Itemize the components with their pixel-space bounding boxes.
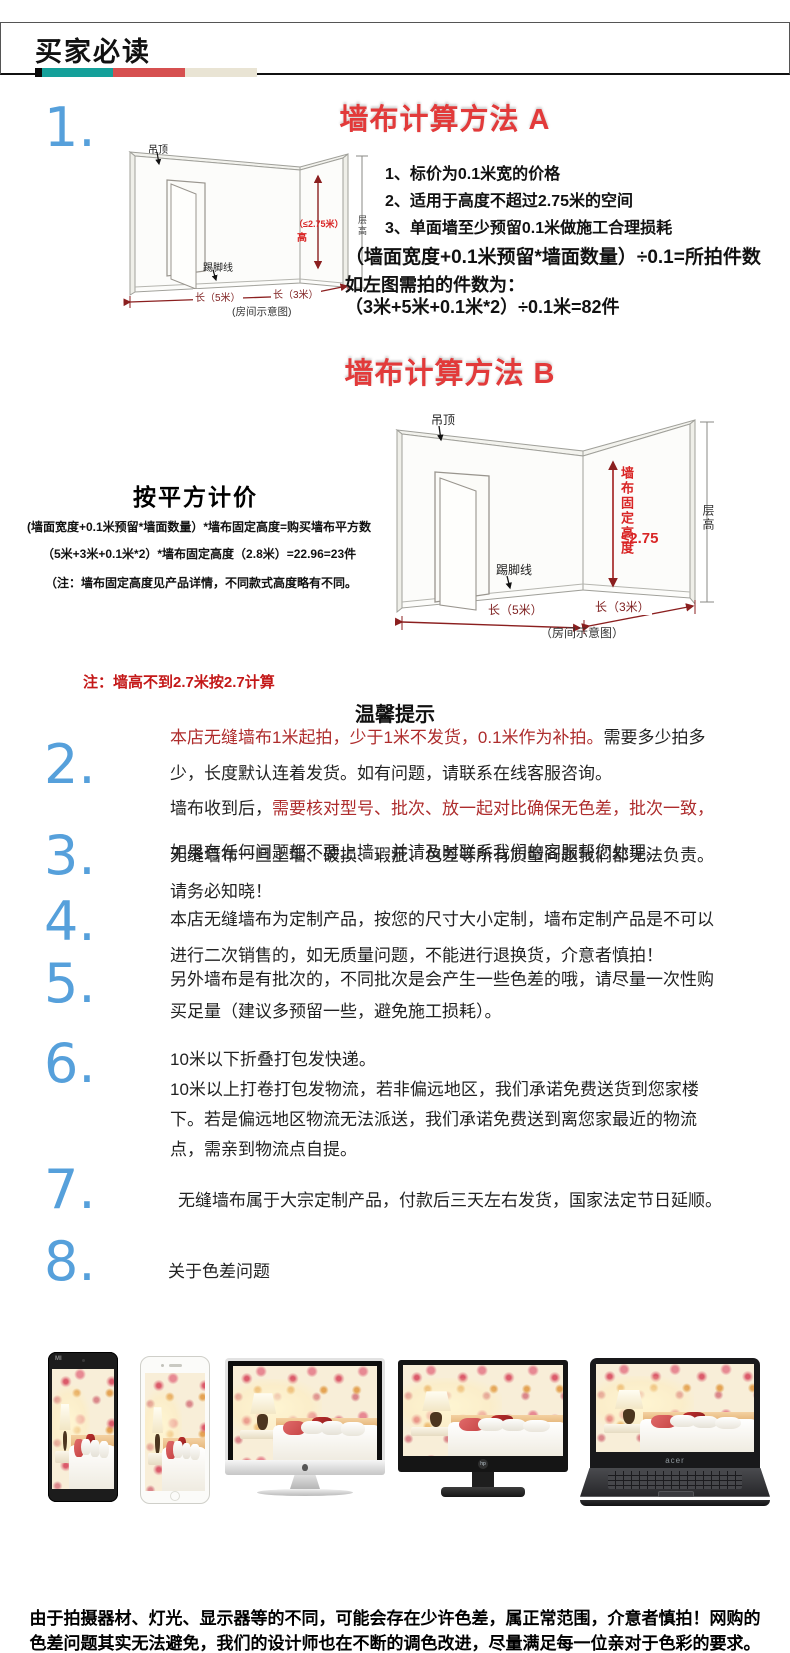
tip-line: 少，长度默认连着发货。如有问题，请联系在线客服咨询。	[170, 759, 612, 784]
ceiling-label-a: 吊顶	[148, 141, 168, 156]
laptop-front-edge	[580, 1500, 770, 1506]
mi-logo: MI	[55, 1356, 62, 1362]
white-pillow	[190, 1444, 200, 1461]
tip-number: 8.	[44, 1232, 96, 1291]
laptop-screen	[596, 1364, 754, 1452]
tablet-screen	[52, 1369, 114, 1489]
acer-logo: acer	[590, 1456, 760, 1465]
bedroom-preview-image	[403, 1365, 563, 1456]
imac-base	[257, 1489, 353, 1496]
home-button-icon	[170, 1491, 180, 1501]
white-pillow	[99, 1441, 110, 1458]
wall-height-note: 注：墙高不到2.7米按2.7计算	[83, 671, 275, 692]
rule-2: 2、适用于高度不超过2.75米的空间	[385, 187, 633, 211]
speaker-icon	[169, 1364, 182, 1367]
floor-height-label-b: 层高	[700, 504, 717, 532]
imac-frame	[225, 1358, 385, 1460]
white-pillow	[478, 1418, 504, 1431]
tip-line: 本店无缝墙布为定制产品，按您的尺寸大小定制，墙布定制产品是不可以	[170, 905, 714, 930]
bedroom-preview-image	[52, 1369, 114, 1489]
tablet-mockup: MI	[48, 1352, 118, 1502]
length-5m-label-b: 长（5米）	[486, 601, 545, 618]
tip-line: 点，需亲到物流点自提。	[170, 1135, 357, 1160]
tip-number: 5.	[44, 954, 96, 1013]
diagram-caption-a: (房间示意图)	[232, 304, 292, 319]
tip-line: 墙布收到后，需要核对型号、批次、放一起对比确保无色差，批次一致，	[170, 794, 714, 819]
method-b-subtitle: 按平方计价	[133, 478, 258, 512]
lamp-shade	[59, 1404, 70, 1430]
tip-number: 4.	[44, 892, 96, 951]
camera-icon	[161, 1364, 164, 1367]
white-pillow	[341, 1422, 365, 1435]
imac-chin	[225, 1460, 385, 1475]
underline-red-segment	[113, 68, 185, 77]
example-b: （5米+3米+0.1米*2）*墙布固定高度（2.8米）=22.96=23件	[42, 545, 356, 562]
tip-line: 另外墙布是有批次的，不同批次是会产生一些色差的哦，请尽量一次性购	[170, 965, 714, 990]
section-number-1: 1.	[44, 98, 96, 157]
height-word-label-a: 高	[297, 229, 307, 244]
laptop-lid: acer	[590, 1358, 760, 1468]
keyboard	[608, 1471, 742, 1489]
lamp-shade	[250, 1393, 276, 1414]
underline-beige-segment	[185, 68, 257, 77]
method-a-title: 墙布计算方法 A	[315, 96, 575, 138]
tip-line: 进行二次销售的，如无质量问题，不能进行退换货，介意者慎拍！	[170, 941, 663, 966]
room-diagram-b	[385, 398, 735, 646]
footer-disclaimer-line-1: 由于拍摄器材、灯光、显示器等的不同，可能会存在少许色差，属正常范围，介意者慎拍！…	[0, 1604, 790, 1629]
tip-line: 无缝墙布一旦上墙、破损、瑕疵、色差等所有质量问题我们都无法负责。	[170, 841, 714, 866]
imac-screen	[233, 1366, 377, 1460]
white-pillow	[715, 1417, 742, 1429]
underline-black-segment	[35, 68, 42, 77]
tip-line: 买足量（建议多预留一些，避免施工损耗）。	[170, 997, 502, 1022]
rule-1: 1、标价为0.1米宽的价格	[385, 160, 560, 184]
white-pillow	[523, 1420, 550, 1433]
imac-stand	[290, 1475, 320, 1489]
length-5m-label-a: 长（5米）	[193, 289, 243, 304]
tip-line: 关于色差问题	[168, 1257, 270, 1282]
length-3m-label-b: 长（3米）	[593, 598, 652, 615]
touchpad	[658, 1491, 694, 1499]
camera-icon	[82, 1359, 85, 1362]
footer-disclaimer-line-2: 色差问题其实无法避免，我们的设计师也在不断的调色改进，尽量满足每一位亲对于色彩的…	[0, 1629, 790, 1653]
formula-a: （墙面宽度+0.1米预留*墙面数量）÷0.1=所拍件数	[345, 242, 761, 269]
lamp-shade	[152, 1407, 163, 1433]
example-a: （3米+5米+0.1米*2）÷0.1米=82件	[345, 293, 620, 319]
laptop-mockup: acer	[580, 1358, 770, 1508]
apple-logo-icon	[302, 1464, 308, 1471]
tip-line: 请务必知晓！	[170, 877, 272, 902]
tip-line: 本店无缝墙布1米起拍，少于1米不发货，0.1米作为补拍。需要多少拍多	[170, 723, 706, 748]
tip-number: 7.	[44, 1160, 96, 1219]
baseboard-label-b: 踢脚线	[496, 561, 532, 578]
floor-height-label-a: 层高	[356, 215, 369, 237]
lamp-shade	[422, 1391, 451, 1411]
tip-line: 10米以上打卷打包发物流，若非偏远地区，我们承诺免费送货到您家楼	[170, 1075, 699, 1100]
length-3m-label-a: 长（3米）	[271, 286, 321, 301]
lamp-body	[155, 1434, 160, 1454]
diagram-caption-b: （房间示意图）	[540, 624, 624, 641]
tip-number: 6.	[44, 1034, 96, 1093]
ceiling-label-b: 吊顶	[431, 411, 455, 428]
lamp-shade	[615, 1390, 643, 1409]
formula-b: (墙面宽度+0.1米预留*墙面数量）*墙布固定高度=购买墙布平方数	[27, 518, 371, 535]
tip-number: 2.	[44, 735, 96, 794]
tip-line: 无缝墙布属于大宗定制产品，付款后三天左右发货，国家法定节日延顺。	[178, 1186, 722, 1211]
imac-mockup	[225, 1358, 385, 1498]
monitor-frame: hp	[398, 1360, 568, 1472]
tip-line: 下。若是偏远地区物流无法派送，我们承诺免费送到离您家最近的物流	[170, 1105, 697, 1130]
note-b: （注：墙布固定高度见产品详情，不同款式高度略有不同。	[45, 574, 357, 591]
bedroom-preview-image	[596, 1364, 754, 1452]
laptop-keyboard-deck	[580, 1468, 770, 1500]
page-title: 买家必读	[35, 30, 151, 69]
buyer-guide-page: 买家必读 1. 墙布计算方法 A 吊顶 踢脚线 （≤2.75米） 高	[0, 0, 790, 1653]
bedroom-preview-image	[233, 1366, 377, 1460]
monitor-base	[441, 1487, 525, 1497]
phone-mockup	[140, 1356, 210, 1504]
lamp-body	[623, 1409, 635, 1424]
bedroom-preview-image	[145, 1373, 205, 1491]
monitor-mockup: hp	[398, 1360, 568, 1500]
monitor-screen	[403, 1365, 563, 1456]
baseboard-label-a: 踢脚线	[203, 259, 233, 274]
white-pillow	[692, 1416, 717, 1428]
height-value-label-b: ≤2.75	[621, 530, 658, 547]
method-b-title: 墙布计算方法 B	[320, 350, 580, 392]
tip-line: 10米以下折叠打包发快递。	[170, 1045, 376, 1070]
underline-teal-segment	[42, 68, 113, 77]
phone-screen	[145, 1373, 205, 1491]
hp-logo: hp	[478, 1459, 488, 1469]
rule-3: 3、单面墙至少预留0.1米做施工合理损耗	[385, 214, 672, 238]
tip-number: 3.	[44, 826, 96, 885]
